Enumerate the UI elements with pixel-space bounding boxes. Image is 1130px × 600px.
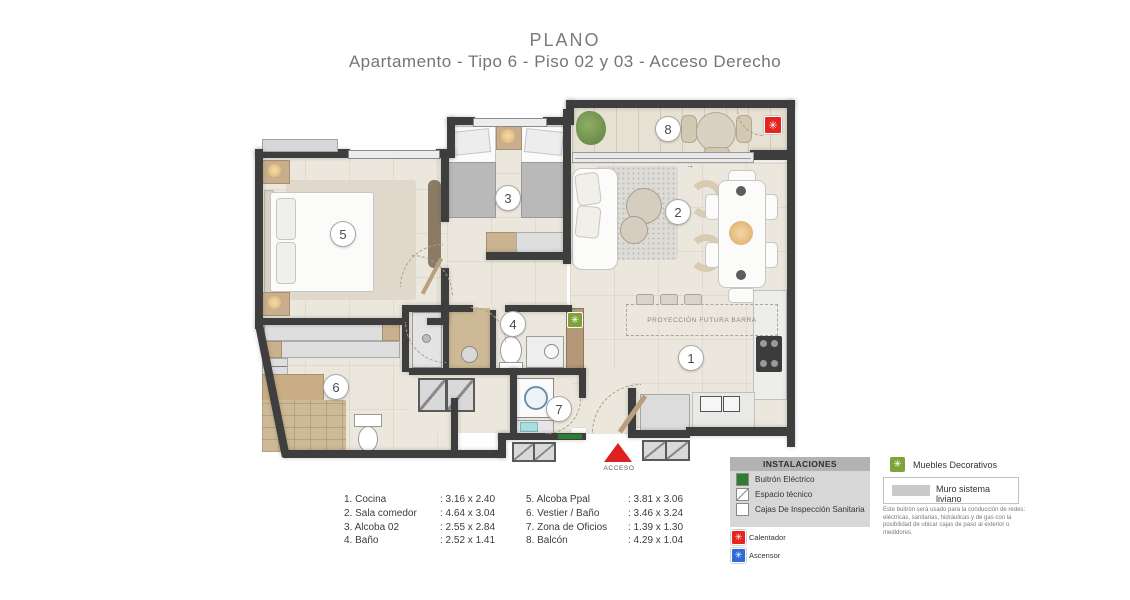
room3-lamp bbox=[501, 129, 515, 143]
room6-closet-row bbox=[264, 324, 400, 341]
proyeccion-barra-box: PROYECCIÓN FUTURA BARRA bbox=[626, 304, 778, 336]
legend-item-buitron: Buitrón Eléctrico bbox=[730, 472, 870, 486]
room-list-row: 8. Balcón: 4.29 x 1.04 bbox=[526, 534, 700, 548]
room3-pillow bbox=[451, 128, 491, 156]
room-dims: : 1.39 x 1.30 bbox=[628, 521, 700, 535]
balcony-table bbox=[696, 112, 736, 152]
legend-label: Espacio técnico bbox=[755, 490, 812, 499]
asterisk-glyph: ✳ bbox=[571, 315, 579, 326]
balcony-plant bbox=[576, 111, 606, 145]
room-list-row: 5. Alcoba Ppal: 3.81 x 3.06 bbox=[526, 493, 700, 507]
room-list-row: 6. Vestier / Baño: 3.46 x 3.24 bbox=[526, 507, 700, 521]
muro-liviano-label: Muro sistema liviano bbox=[936, 484, 1018, 504]
room3-blanket-right bbox=[521, 162, 568, 218]
room-number-2: 2 bbox=[665, 199, 691, 225]
room6-closet-row bbox=[264, 341, 400, 358]
muro-liviano-item: Muro sistema liviano bbox=[883, 477, 1019, 504]
stove-burner bbox=[771, 360, 778, 367]
ascensor-icon: ✳ bbox=[731, 548, 746, 563]
room-number-4: 4 bbox=[500, 311, 526, 337]
utility-basin bbox=[520, 422, 538, 432]
room-dims: : 3.81 x 3.06 bbox=[628, 493, 700, 507]
plan-sheet: PLANO Apartamento - Tipo 6 - Piso 02 y 0… bbox=[0, 0, 1130, 600]
asterisk-glyph: ✳ bbox=[768, 119, 777, 132]
room-dims: : 4.64 x 3.04 bbox=[440, 507, 512, 521]
bath-pedestal-sink bbox=[461, 346, 478, 363]
wall-segment bbox=[441, 156, 449, 222]
muebles-decorativos-icon: ✳ bbox=[567, 312, 583, 328]
acceso-arrow bbox=[604, 443, 632, 462]
espacio-tecnico-box bbox=[665, 440, 690, 461]
room-name: 5. Alcoba Ppal bbox=[526, 493, 628, 507]
legend-label: Buitrón Eléctrico bbox=[755, 475, 815, 484]
balcony-slider bbox=[572, 152, 754, 163]
washer-drum bbox=[524, 386, 548, 410]
wall-segment bbox=[563, 109, 571, 264]
room-list-row: 4. Baño: 2.52 x 1.41 bbox=[344, 534, 512, 548]
buitron-note: Este buitrón será usado para la conducci… bbox=[883, 507, 1029, 537]
room-list-row: 2. Sala comedor: 4.64 x 3.04 bbox=[344, 507, 512, 521]
room-number-6: 6 bbox=[323, 374, 349, 400]
room-dims: : 2.55 x 2.84 bbox=[440, 521, 512, 535]
room-list-row: 3. Alcoba 02: 2.55 x 2.84 bbox=[344, 521, 512, 535]
coffee-table-small bbox=[620, 216, 648, 244]
room-number-8: 8 bbox=[655, 116, 681, 142]
dining-centerpiece bbox=[729, 221, 753, 245]
wall-segment bbox=[579, 368, 586, 398]
room-list-row: 1. Cocina: 3.16 x 2.40 bbox=[344, 493, 512, 507]
stove-burner bbox=[760, 340, 767, 347]
sofa-cushion bbox=[574, 171, 602, 206]
muro-liviano-swatch bbox=[892, 485, 930, 496]
exterior-cabinet bbox=[262, 139, 338, 152]
muebles-decorativos-icon: ✳ bbox=[890, 457, 905, 472]
dining-chair bbox=[728, 288, 756, 303]
instalaciones-legend: INSTALACIONES Buitrón Eléctrico Espacio … bbox=[730, 457, 870, 527]
dining-plate bbox=[736, 270, 746, 280]
room5-lamp bbox=[268, 296, 281, 309]
room-name: 2. Sala comedor bbox=[344, 507, 440, 521]
calentador-label: Calentador bbox=[749, 533, 786, 542]
room-dims: : 2.52 x 1.41 bbox=[440, 534, 512, 548]
asterisk-glyph: ✳ bbox=[735, 550, 743, 561]
room6-closet-cap bbox=[382, 324, 400, 341]
wall-segment bbox=[686, 427, 792, 436]
balcony-chair bbox=[681, 115, 697, 143]
acceso-label: ACCESO bbox=[596, 465, 642, 472]
room-dims: : 3.46 x 3.24 bbox=[628, 507, 700, 521]
room3-blanket-left bbox=[448, 162, 496, 218]
muebles-decorativos-label: Muebles Decorativos bbox=[913, 460, 997, 470]
window bbox=[473, 118, 547, 127]
wall-segment bbox=[787, 100, 795, 447]
room-name: 3. Alcoba 02 bbox=[344, 521, 440, 535]
room5-pillow bbox=[276, 242, 296, 284]
stove-burner bbox=[771, 340, 778, 347]
legend-item-cajas: Cajas De Inspección Sanitaria bbox=[730, 502, 870, 516]
room-list-row: 7. Zona de Oficios: 1.39 x 1.30 bbox=[526, 521, 700, 535]
wall-segment bbox=[255, 149, 263, 329]
espacio-tecnico-box bbox=[512, 442, 535, 462]
wall-segment bbox=[409, 368, 585, 375]
room5-lamp bbox=[268, 164, 281, 177]
wall-segment bbox=[283, 450, 505, 458]
cajas-inspeccion-swatch bbox=[736, 503, 749, 516]
wall-segment bbox=[486, 252, 570, 260]
instalaciones-title: INSTALACIONES bbox=[730, 457, 870, 471]
ascensor-label: Ascensor bbox=[749, 551, 780, 560]
dining-plate bbox=[736, 186, 746, 196]
window bbox=[348, 150, 440, 159]
espacio-tecnico-box bbox=[533, 442, 556, 462]
room-number-1: 1 bbox=[678, 345, 704, 371]
wall-segment bbox=[451, 398, 458, 452]
legend-item-espacio: Espacio técnico bbox=[730, 487, 870, 501]
espacio-tecnico-box bbox=[418, 378, 447, 412]
room3-pillow bbox=[524, 128, 564, 156]
wall-segment bbox=[257, 318, 405, 325]
room-dimension-list: 1. Cocina: 3.16 x 2.40 2. Sala comedor: … bbox=[344, 493, 700, 548]
room-name: 7. Zona de Oficios bbox=[526, 521, 628, 535]
room-dims: : 3.16 x 2.40 bbox=[440, 493, 512, 507]
room-dims: : 4.29 x 1.04 bbox=[628, 534, 700, 548]
room6-toilet-bowl bbox=[358, 426, 378, 452]
wall-segment bbox=[447, 117, 475, 125]
buitron-electrico-strip bbox=[558, 434, 582, 439]
kitchen-sink bbox=[700, 396, 722, 412]
asterisk-glyph: ✳ bbox=[735, 532, 743, 543]
wall-segment bbox=[510, 368, 517, 438]
kitchen-sink bbox=[723, 396, 740, 412]
wall-segment bbox=[566, 100, 795, 108]
espacio-tecnico-box bbox=[642, 440, 667, 461]
room-number-5: 5 bbox=[330, 221, 356, 247]
legend-label: Cajas De Inspección Sanitaria bbox=[755, 505, 865, 514]
asterisk-glyph: ✳ bbox=[893, 459, 901, 470]
buitron-electrico-swatch bbox=[736, 473, 749, 486]
room-name: 8. Balcón bbox=[526, 534, 628, 548]
room-number-7: 7 bbox=[546, 396, 572, 422]
room-name: 6. Vestier / Baño bbox=[526, 507, 628, 521]
espacio-tecnico-swatch bbox=[736, 488, 749, 501]
proyeccion-barra-label: PROYECCIÓN FUTURA BARRA bbox=[647, 317, 757, 324]
calentador-icon: ✳ bbox=[731, 530, 746, 545]
slider-arrow-icon: → bbox=[686, 161, 695, 170]
stove-burner bbox=[760, 360, 767, 367]
room-name: 4. Baño bbox=[344, 534, 440, 548]
room-list-col1: 1. Cocina: 3.16 x 2.40 2. Sala comedor: … bbox=[344, 493, 512, 548]
room-number-3: 3 bbox=[495, 185, 521, 211]
wall-segment bbox=[750, 150, 788, 160]
room5-pillow bbox=[276, 198, 296, 240]
bath-basin bbox=[544, 344, 559, 359]
room-list-col2: 5. Alcoba Ppal: 3.81 x 3.06 6. Vestier /… bbox=[526, 493, 700, 548]
sofa-cushion bbox=[574, 205, 601, 239]
room-name: 1. Cocina bbox=[344, 493, 440, 507]
calentador-icon: ✳ bbox=[764, 116, 782, 134]
wall-segment bbox=[409, 305, 473, 312]
